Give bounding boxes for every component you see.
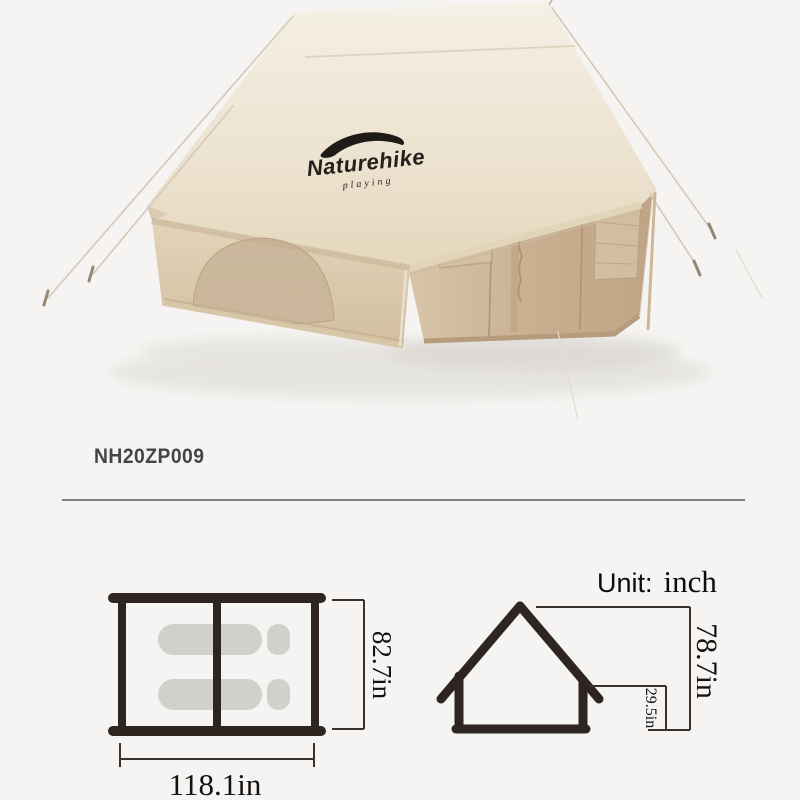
divider-line	[62, 499, 745, 501]
depth-dimension-line	[332, 600, 364, 729]
ground-shadow	[110, 334, 710, 398]
wall-height-label: 29.5in	[642, 688, 659, 728]
model-number: NH20ZP009	[94, 445, 204, 469]
tent-photo: Naturehike playing	[0, 0, 800, 430]
sleeping-pad	[158, 624, 262, 655]
product-spec-image: Naturehike playing NH20ZP009 Unit: inch …	[0, 0, 800, 800]
dimension-diagrams: 82.7in 118.1in 78.7in 29.5in	[0, 540, 800, 800]
depth-dimension-label: 82.7in	[367, 631, 397, 700]
width-dimension-label: 118.1in	[169, 767, 262, 800]
sleeping-pad-pillow	[267, 679, 290, 710]
peak-height-label: 78.7in	[690, 623, 723, 699]
elevation-diagram: 78.7in 29.5in	[441, 606, 723, 730]
sleeping-pad	[158, 679, 262, 710]
sleeping-pad-pillow	[267, 624, 290, 655]
floorplan-diagram: 82.7in 118.1in	[113, 598, 397, 800]
width-dimension-line	[120, 743, 314, 767]
